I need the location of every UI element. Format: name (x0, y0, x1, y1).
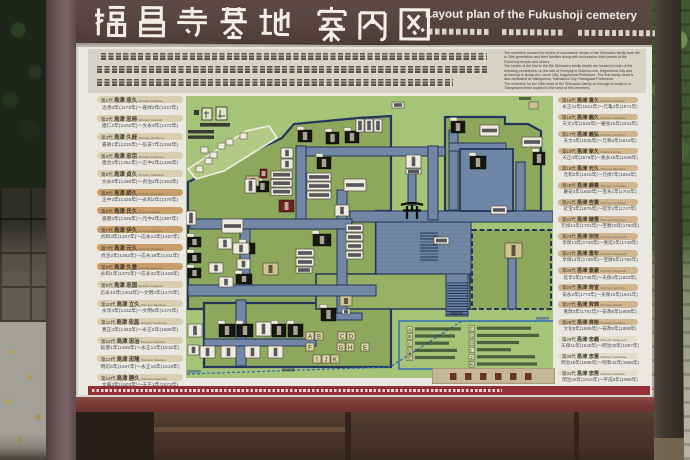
svg-text:H: H (348, 346, 352, 352)
svg-text:E: E (408, 356, 411, 361)
svg-text:G: G (339, 346, 344, 352)
svg-text:I: I (470, 348, 471, 353)
svg-text:K: K (333, 358, 337, 364)
svg-text:H: H (470, 341, 473, 346)
svg-text:F: F (470, 326, 473, 331)
svg-text:C: C (340, 335, 345, 341)
svg-text:J: J (325, 358, 328, 364)
svg-text:G: G (470, 334, 474, 339)
svg-text:B: B (408, 334, 411, 339)
svg-text:B: B (317, 335, 321, 341)
svg-text:D: D (349, 335, 354, 341)
svg-text:E: E (363, 346, 367, 352)
svg-text:A: A (308, 335, 312, 341)
svg-text:J: J (470, 355, 472, 360)
svg-text:F: F (308, 346, 312, 352)
